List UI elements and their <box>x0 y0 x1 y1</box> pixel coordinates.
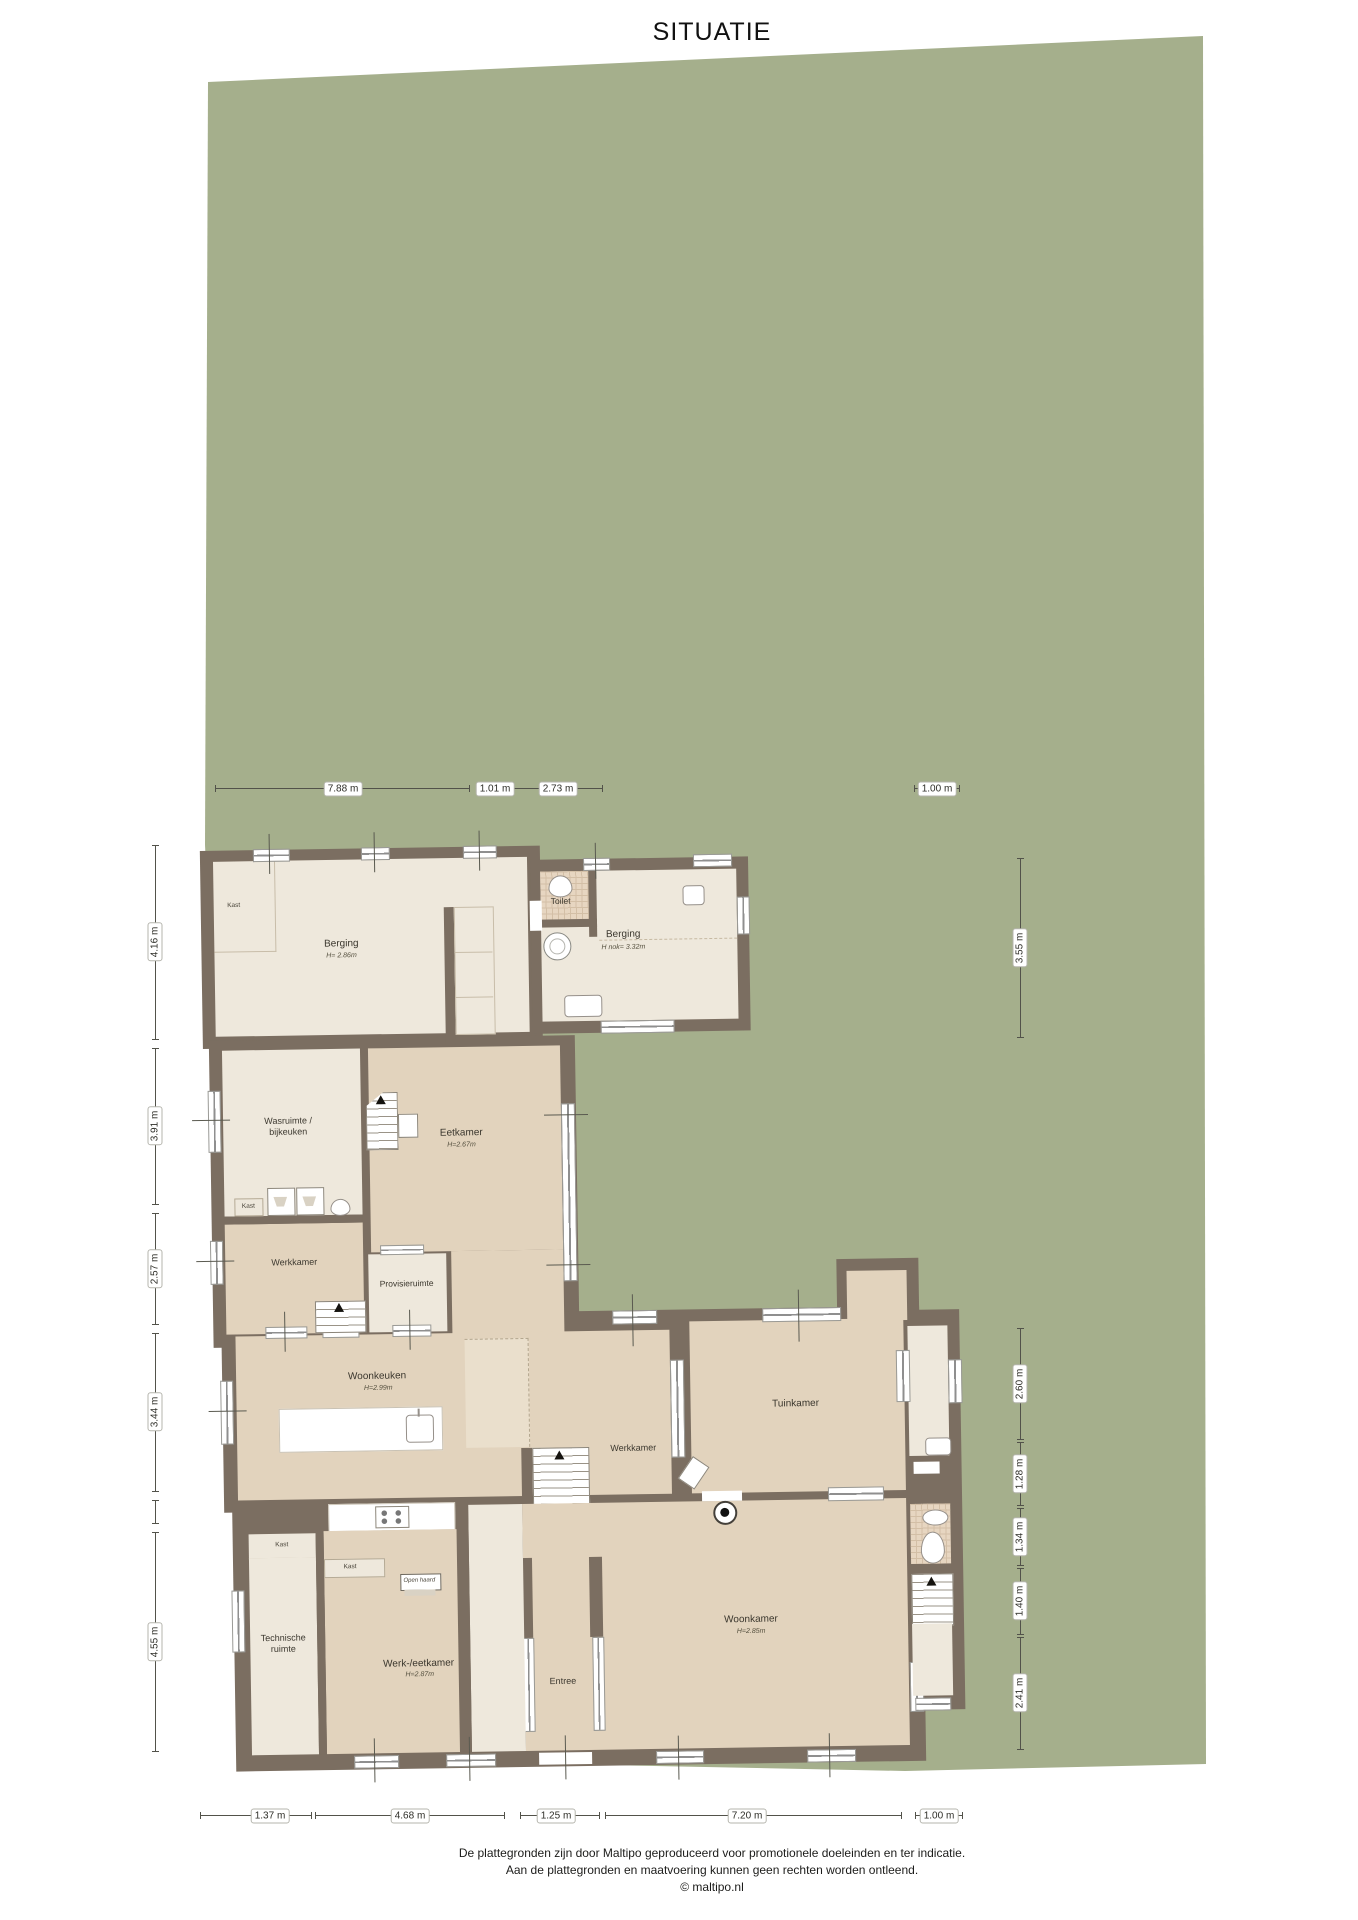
dim-label-left-4: 3.44 m <box>148 1393 163 1432</box>
label-eetkamer-height: H=2.67m <box>447 1141 476 1148</box>
dim-label-bottom-1: 1.37 m <box>251 1809 290 1824</box>
bottom-window-1 <box>354 1755 399 1769</box>
label-eetkamer: Eetkamer <box>440 1127 483 1139</box>
annex-window-1 <box>583 858 610 871</box>
label-technische-l2: ruimte <box>271 1644 296 1654</box>
label-berging1-height: H= 2.86m <box>326 952 357 959</box>
open-haard-hearth <box>404 1589 435 1595</box>
wall-entree-stub-right <box>589 1557 603 1637</box>
dim-label-right-6: 2.41 m <box>1013 1674 1028 1713</box>
west-window-wasruimte <box>208 1091 222 1153</box>
stairs-wing-arrow <box>926 1577 936 1586</box>
label-kast-berging: Kast <box>227 902 240 909</box>
label-entree: Entree <box>550 1676 577 1687</box>
dim-label-top-3: 2.73 m <box>539 782 578 797</box>
door-berging-annex <box>530 901 542 931</box>
dim-label-bottom-4: 7.20 m <box>728 1809 767 1824</box>
tuinkamer-window-1 <box>612 1310 657 1325</box>
label-open-haard: Open haard <box>403 1577 435 1583</box>
dim-label-right-3: 1.28 m <box>1013 1455 1028 1494</box>
label-woonkamer-height: H=2.85m <box>737 1628 766 1635</box>
wing-west-door <box>896 1350 911 1402</box>
island-sink-icon <box>406 1414 434 1442</box>
stairs-main-arrow <box>554 1450 564 1459</box>
label-wasruimte-l2: bijkeuken <box>269 1126 307 1137</box>
dim-label-bottom-5: 1.00 m <box>920 1809 959 1824</box>
label-tuinkamer: Tuinkamer <box>772 1398 819 1410</box>
berging-window-2 <box>361 847 390 860</box>
footer-line-1: De plattegronden zijn door Maltipo gepro… <box>212 1846 1212 1860</box>
label-wasruimte: Wasruimte / bijkeuken <box>264 1115 312 1138</box>
floor-wing-hall-upper <box>907 1325 949 1456</box>
provisie-window <box>380 1245 424 1256</box>
dim-label-right-1: 3.55 m <box>1013 929 1028 968</box>
label-werkeetkamer: Werk-/eetkamer <box>383 1658 454 1670</box>
floor-vide-zone <box>465 1338 531 1448</box>
stairs-eetkamer-arrow <box>376 1095 386 1104</box>
floor-corridor <box>468 1504 526 1752</box>
wall-stairs-left <box>521 1448 533 1504</box>
footer-line-2: Aan de plattegronden en maatvoering kunn… <box>212 1863 1212 1877</box>
annex-window-south <box>601 1020 675 1034</box>
west-door-werkkamer <box>210 1241 224 1285</box>
eetkamer-cabinet <box>398 1114 418 1138</box>
berging-shelves <box>454 906 496 1035</box>
werkkamer-glass-door <box>670 1359 686 1457</box>
footer-line-3: © maltipo.nl <box>212 1880 1212 1894</box>
floor-provisieruimte <box>368 1253 447 1332</box>
label-woonkamer: Woonkamer <box>724 1614 778 1626</box>
dim-label-right-5: 1.40 m <box>1013 1582 1028 1621</box>
wing-toilet-door <box>914 1461 940 1473</box>
dim-label-left-2: 3.91 m <box>148 1107 163 1146</box>
dim-label-right-2: 2.60 m <box>1013 1365 1028 1404</box>
west-window-woonkeuken <box>220 1381 234 1445</box>
woonkamer-top-window <box>828 1486 884 1501</box>
label-woonkeuken-height: H=2.99m <box>364 1385 393 1392</box>
label-provisieruimte: Provisieruimte <box>380 1278 434 1290</box>
berging-window-1 <box>253 849 290 863</box>
dim-label-right-4: 1.34 m <box>1013 1518 1028 1557</box>
west-window-technische <box>231 1590 245 1652</box>
label-berging1: Berging <box>324 938 359 950</box>
annex-window-east <box>737 896 751 934</box>
label-berging2-height: H nok= 3.32m <box>601 944 645 952</box>
cooktop-icon <box>375 1506 409 1529</box>
floor-tuinkamer-notch <box>846 1270 907 1321</box>
wing-sink-icon <box>925 1437 951 1455</box>
label-kast-technische: Kast <box>275 1541 288 1548</box>
woonkeuken-window-1 <box>265 1326 307 1339</box>
wing-east-window <box>948 1359 963 1403</box>
label-berging2: Berging <box>606 929 641 941</box>
wasruimte-wc-icon <box>330 1199 350 1216</box>
dim-label-bottom-3: 1.25 m <box>537 1809 576 1824</box>
floor-woonkamer <box>522 1498 910 1751</box>
label-werkkamer-midden: Werkkamer <box>610 1442 656 1454</box>
dim-label-top-4: 1.00 m <box>918 782 957 797</box>
stove-dot <box>720 1508 729 1517</box>
toilet1-wc-icon <box>548 875 572 897</box>
dim-label-bottom-2: 4.68 m <box>391 1809 430 1824</box>
island-tap <box>418 1409 420 1417</box>
annex-sink2-icon <box>564 995 602 1018</box>
situatie-floorplan: SITUATIE <box>0 0 1358 1920</box>
floor-eetkamer-south <box>451 1249 564 1337</box>
label-woonkeuken: Woonkeuken <box>348 1370 406 1382</box>
woonkeuken-window-3 <box>392 1324 431 1337</box>
floor-technische <box>249 1557 319 1755</box>
dim-line <box>155 1500 156 1524</box>
wall-toilet1-bottom <box>541 919 597 928</box>
wing-bottom-window <box>915 1697 951 1711</box>
bottom-window-3 <box>656 1750 704 1764</box>
entree-glass-right <box>592 1637 605 1731</box>
label-toilet1: Toilet <box>551 896 571 907</box>
annex-window-2 <box>693 854 732 868</box>
dim-label-top-1: 7.88 m <box>324 782 363 797</box>
house: Kast Berging H= 2.86m Toilet Berging H n… <box>200 839 974 1776</box>
label-kast-werkeetkamer: Kast <box>344 1563 357 1570</box>
dim-label-top-2: 1.01 m <box>476 782 515 797</box>
bottom-window-4 <box>807 1749 856 1763</box>
annex-sink-icon <box>682 885 704 905</box>
stairs-kelder-arrow <box>334 1303 344 1312</box>
label-wasruimte-l1: Wasruimte / <box>264 1115 312 1126</box>
bottom-window-2 <box>446 1753 496 1767</box>
dim-label-left-3: 2.57 m <box>148 1250 163 1289</box>
eetkamer-east-window <box>561 1103 578 1281</box>
label-technische-l1: Technische <box>261 1632 306 1643</box>
label-werkkamer-links: Werkkamer <box>271 1257 317 1269</box>
dim-label-left-5: 4.55 m <box>148 1623 163 1662</box>
floor-wing-hall-lower <box>912 1623 953 1696</box>
label-werkeetkamer-height: H=2.87m <box>405 1671 434 1678</box>
label-kast-wasruimte: Kast <box>242 1203 255 1210</box>
dim-label-left-1: 4.16 m <box>148 923 163 962</box>
door-woonkamer-hal <box>702 1491 742 1502</box>
tuinkamer-window-2 <box>762 1307 841 1322</box>
kast-berging-outline <box>213 861 276 953</box>
label-technische: Technische ruimte <box>261 1632 306 1655</box>
